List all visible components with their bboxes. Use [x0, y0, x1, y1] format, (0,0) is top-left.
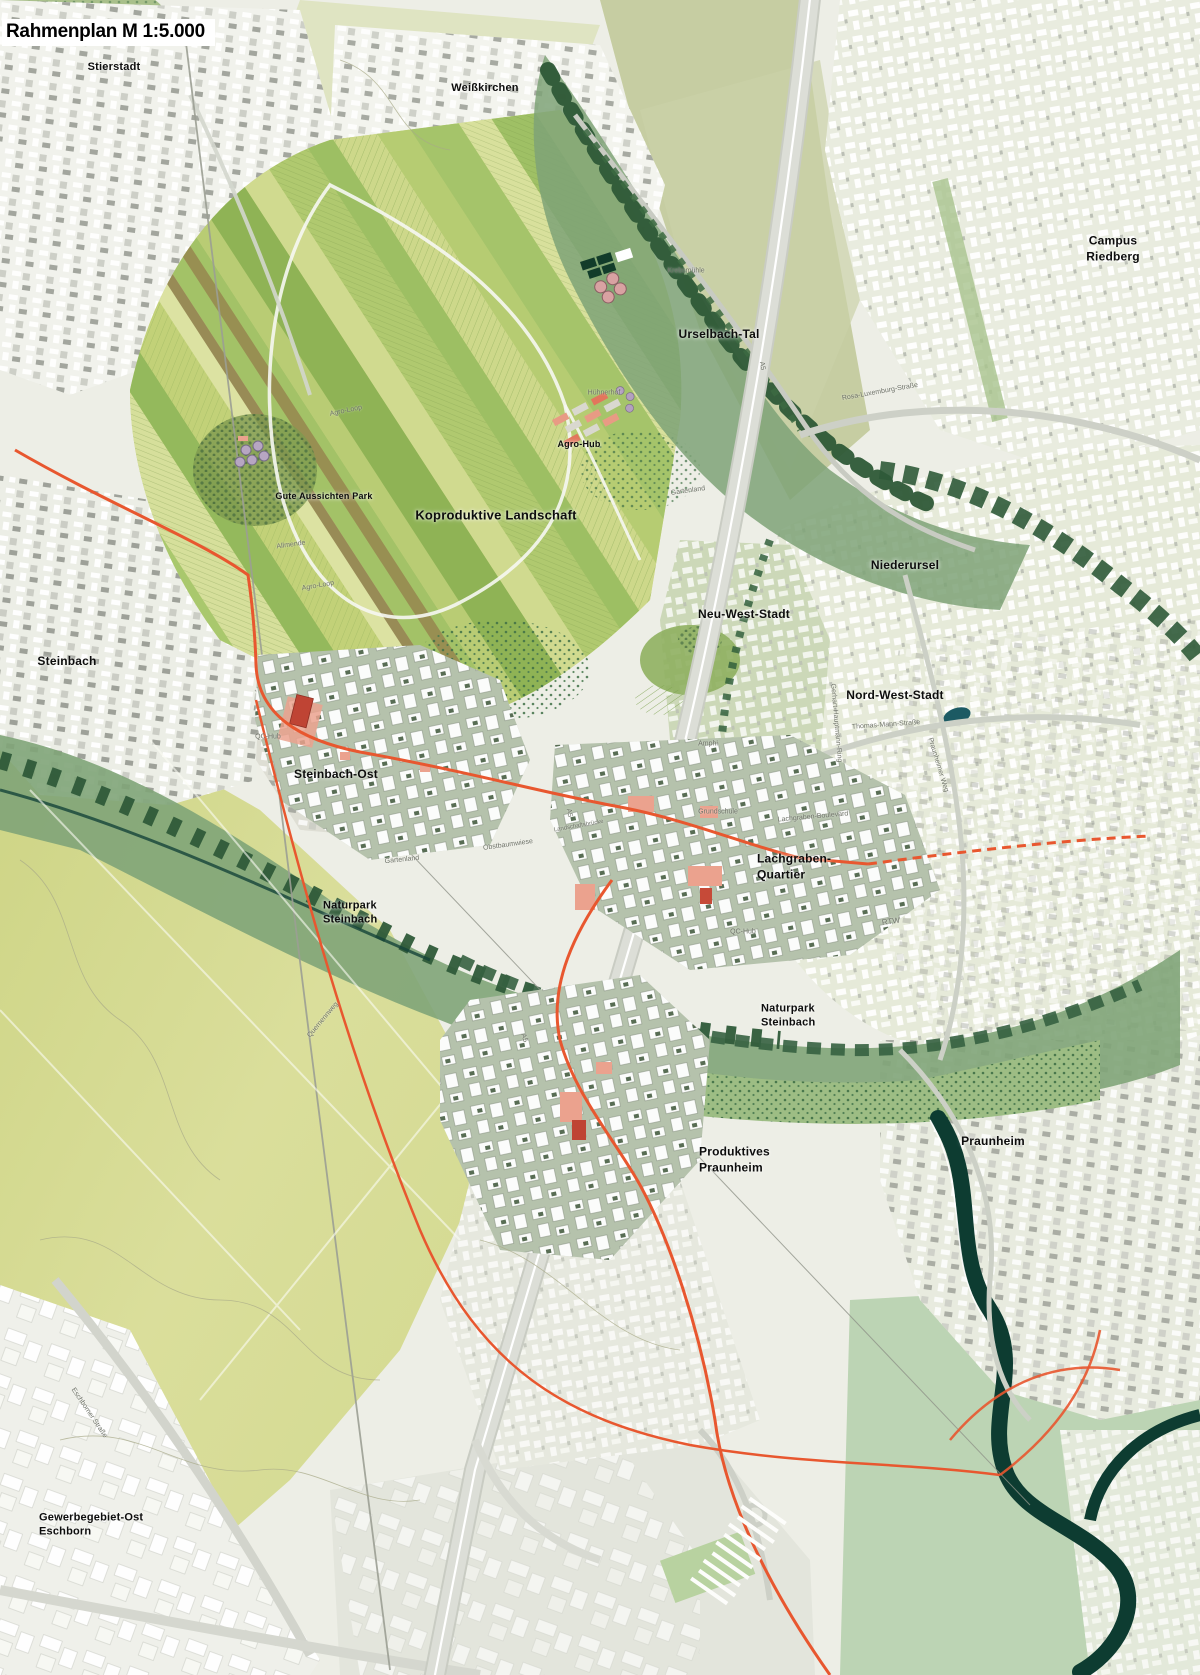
masterplan-map: StierstadtWeißkirchenCampus RiedbergUrse… [0, 0, 1200, 1675]
map-artwork [0, 0, 1200, 1675]
page-title: Rahmenplan M 1:5.000 [2, 19, 215, 46]
